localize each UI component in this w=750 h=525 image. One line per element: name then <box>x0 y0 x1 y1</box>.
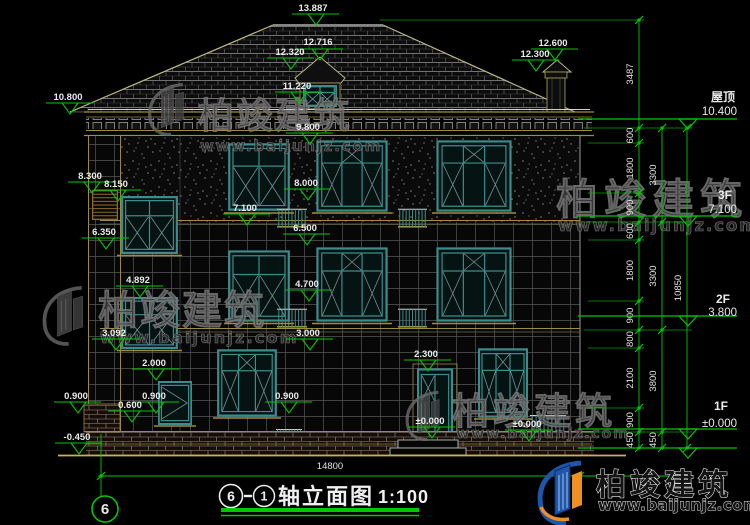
marker-value: 12.716 <box>303 37 332 48</box>
stair-window-upper <box>122 197 177 253</box>
marker-value: 6.350 <box>92 227 116 238</box>
dimension-label: 10850 <box>673 275 684 301</box>
dimension-label: 800 <box>625 331 636 347</box>
marker-value: -0.450 <box>64 432 91 443</box>
marker-value: 7.100 <box>233 203 257 214</box>
marker-value: ±0.000 <box>513 419 542 430</box>
watermark-brand: 柏竣建筑 <box>198 96 352 137</box>
level-label-3f: 3F <box>718 188 732 202</box>
marker-value: 11.220 <box>283 81 312 92</box>
window-3f-right <box>438 141 511 210</box>
brand-logo: 柏竣建筑 www.baijunjz.com <box>540 463 750 523</box>
title-underline-thick <box>221 508 419 512</box>
marker-value: 12.600 <box>538 38 567 49</box>
bottom-dimension-label: 14800 <box>317 461 343 472</box>
elevation-marker: 13.887 <box>292 3 339 25</box>
level-label-2f: 2F <box>716 292 730 306</box>
dimension-label: 600 <box>625 223 636 239</box>
elevation-drawing: 柏竣建筑 www.baijunjz.com 柏竣建筑 www.baijunjz.… <box>0 0 750 525</box>
marker-value: 0.900 <box>64 391 88 402</box>
dimension-label: 900 <box>625 412 636 428</box>
level-value-3f: 7.100 <box>708 204 737 216</box>
watermark-site: www.baijunjz.com <box>456 426 630 442</box>
title-scale: 1:100 <box>378 487 429 507</box>
dimension-label: 1800 <box>625 157 636 178</box>
marker-value: 10.800 <box>53 92 82 103</box>
level-value-1f: ±0.000 <box>702 418 737 430</box>
step <box>390 448 466 455</box>
marker-value: 6.500 <box>293 223 317 234</box>
watermark-site: www.baijunjz.com <box>200 137 382 155</box>
dimension-label: 900 <box>625 200 636 216</box>
marker-value: 0.900 <box>142 391 166 402</box>
dimension-label: 2100 <box>625 367 636 388</box>
dimension-label: 3300 <box>648 265 659 286</box>
watermark-site: www.baijunjz.com <box>558 216 750 235</box>
marker-value: 2.000 <box>142 358 166 369</box>
brand-logo-site: www.baijunjz.com <box>598 496 750 514</box>
marker-value: 8.300 <box>78 171 102 182</box>
title-axis-end: 1 <box>261 490 268 504</box>
marker-value: 13.887 <box>298 3 327 14</box>
dimension-label: 450 <box>648 432 659 448</box>
marker-value: 9.800 <box>296 122 320 133</box>
marker-value: 2.300 <box>414 349 438 360</box>
drawing-title: 6 1 轴立面图 1:100 <box>220 484 430 516</box>
marker-value: 3.092 <box>102 328 126 339</box>
dimension-label: 450 <box>625 432 636 448</box>
cad-elevation-screenshot: 柏竣建筑 www.baijunjz.com 柏竣建筑 www.baijunjz.… <box>0 0 750 525</box>
title-axis-start: 6 <box>227 488 235 504</box>
dimension-label: 3487 <box>625 63 636 84</box>
level-value-roof: 10.400 <box>702 106 737 118</box>
step <box>398 440 458 448</box>
marker-value: 3.000 <box>296 328 320 339</box>
dimension-label: 600 <box>625 128 636 144</box>
marker-value: 12.300 <box>520 49 549 60</box>
chimney <box>543 60 571 112</box>
dimension-label: 1800 <box>625 260 636 281</box>
level-label-1f: 1F <box>714 399 728 413</box>
marker-value: 8.000 <box>294 178 318 189</box>
window-2f-right <box>438 249 511 321</box>
window-2f-center <box>317 249 386 321</box>
brand-logo-icon <box>540 463 582 523</box>
marker-value: ±0.000 <box>416 416 445 427</box>
dimension-label: 3300 <box>648 164 659 185</box>
window-1f-left <box>218 350 276 415</box>
watermark-site: www.baijunjz.com <box>100 328 299 347</box>
level-label-roof: 屋顶 <box>711 90 735 104</box>
marker-value: 4.892 <box>126 275 150 286</box>
marker-value: 12.320 <box>275 47 304 58</box>
marker-value: 8.150 <box>104 179 128 190</box>
marker-value: 4.700 <box>295 279 319 290</box>
title-text: 轴立面图 <box>278 484 374 509</box>
level-value-2f: 3.800 <box>708 307 737 319</box>
axis-bubble-number: 6 <box>101 501 109 518</box>
watermark-logo-icon <box>45 288 83 344</box>
dimension-label: 3800 <box>648 370 659 391</box>
marker-value: 0.600 <box>118 400 142 411</box>
marker-value: 0.900 <box>275 391 299 402</box>
